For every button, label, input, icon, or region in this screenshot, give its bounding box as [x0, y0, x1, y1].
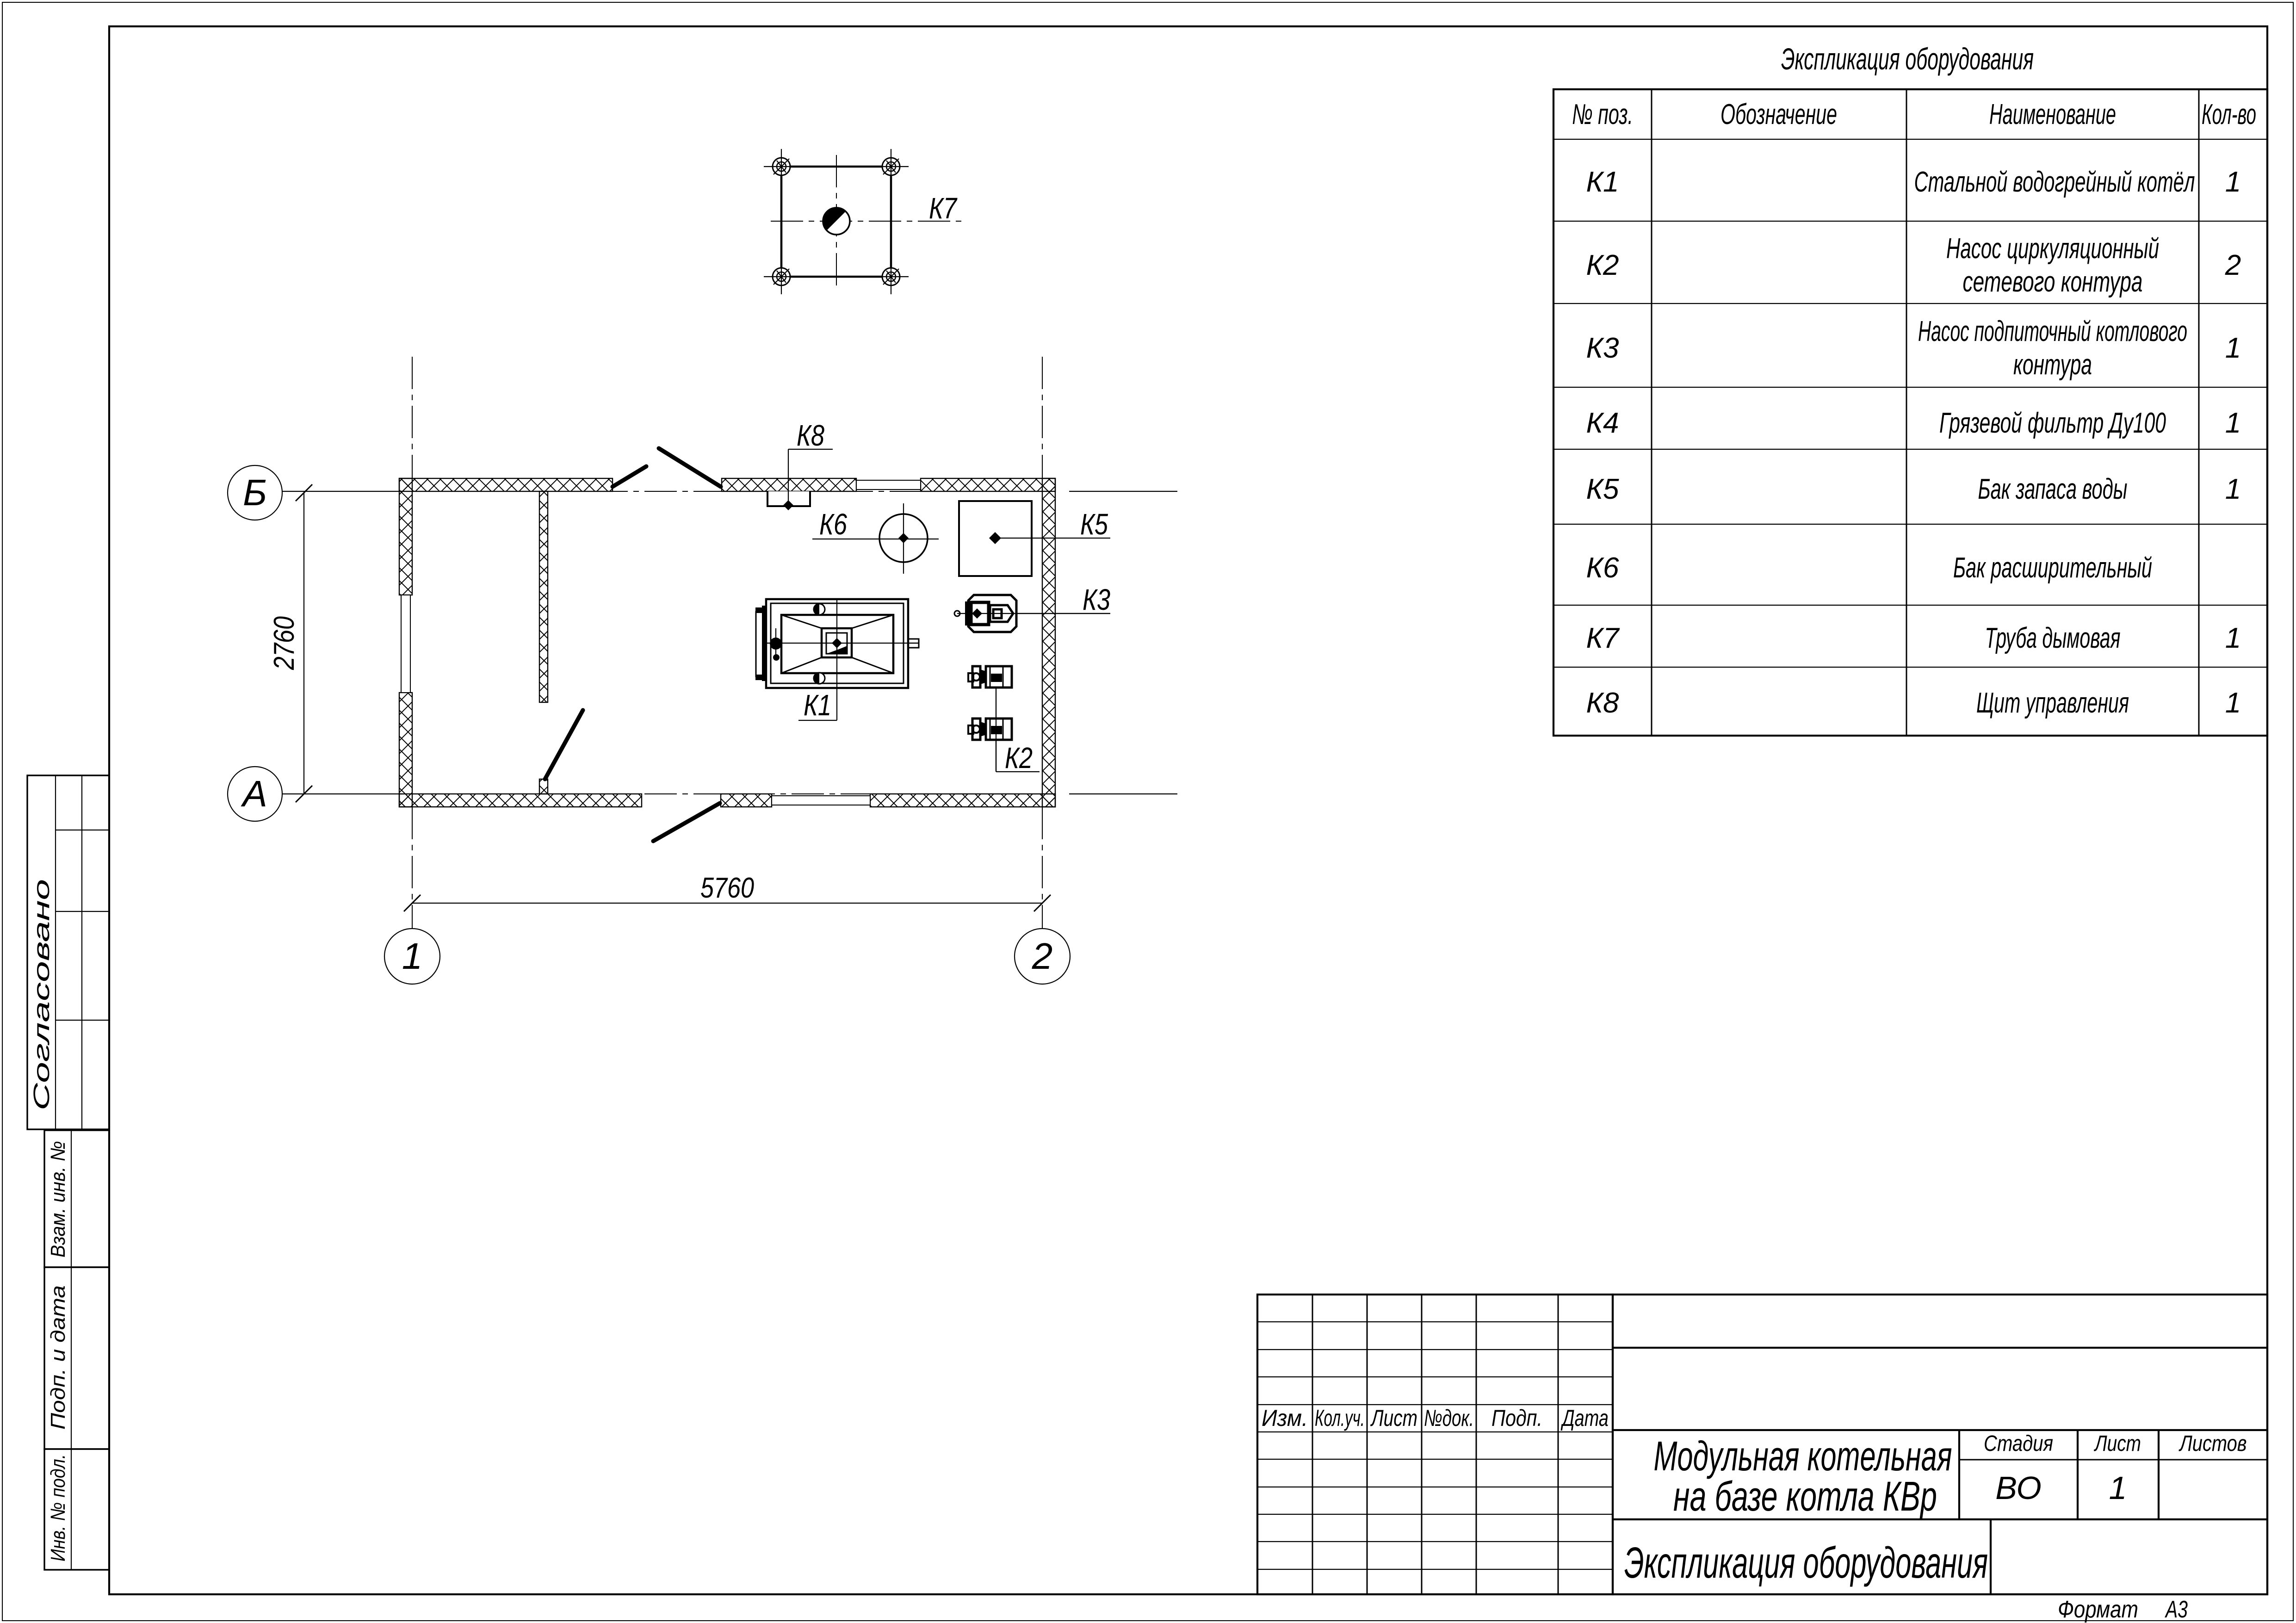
svg-text:Лист: Лист [1370, 1405, 1417, 1431]
svg-text:Стадия: Стадия [1984, 1431, 2053, 1456]
svg-text:Кол.уч.: Кол.уч. [1315, 1405, 1365, 1431]
svg-text:К8: К8 [797, 419, 824, 452]
svg-text:Грязевой фильтр Ду100: Грязевой фильтр Ду100 [1939, 407, 2166, 439]
svg-text:А3: А3 [2165, 1596, 2188, 1623]
svg-text:К8: К8 [1586, 687, 1619, 719]
svg-text:5760: 5760 [700, 872, 754, 904]
svg-text:Щит управления: Щит управления [1976, 687, 2129, 719]
svg-text:контура: контура [2013, 349, 2092, 381]
svg-text:К1: К1 [1586, 166, 1619, 198]
svg-text:Бак расширительный: Бак расширительный [1953, 552, 2152, 584]
svg-text:1: 1 [2225, 407, 2241, 439]
svg-text:К3: К3 [1083, 583, 1110, 616]
svg-text:Б: Б [243, 472, 267, 513]
svg-text:К1: К1 [804, 688, 831, 722]
svg-text:1: 1 [2109, 1470, 2127, 1506]
svg-text:№ поз.: № поз. [1572, 99, 1633, 130]
svg-text:Стальной водогрейный котёл: Стальной водогрейный котёл [1914, 166, 2195, 198]
svg-text:сетевого контура: сетевого контура [1963, 266, 2143, 298]
svg-text:А: А [241, 773, 267, 814]
svg-text:Согласовано: Согласовано [30, 879, 54, 1110]
svg-text:К5: К5 [1080, 508, 1108, 541]
svg-text:Листов: Листов [2178, 1431, 2246, 1456]
svg-text:2: 2 [1032, 935, 1053, 977]
svg-text:Насос циркуляционный: Насос циркуляционный [1946, 233, 2159, 265]
svg-text:1: 1 [2225, 473, 2241, 505]
svg-text:№док.: №док. [1424, 1405, 1474, 1431]
svg-text:Наименование: Наименование [1989, 99, 2116, 130]
svg-text:К7: К7 [1586, 622, 1620, 654]
svg-text:2760: 2760 [268, 616, 300, 670]
svg-text:К6: К6 [1586, 552, 1619, 584]
svg-text:Труба дымовая: Труба дымовая [1985, 622, 2121, 654]
svg-text:на базе котла КВр: на базе котла КВр [1673, 1474, 1937, 1520]
svg-text:1: 1 [402, 935, 423, 977]
svg-text:Подп.: Подп. [1491, 1405, 1542, 1431]
svg-text:К2: К2 [1586, 249, 1619, 281]
svg-text:Формат: Формат [2058, 1596, 2138, 1623]
svg-text:Бак запаса воды: Бак запаса воды [1978, 473, 2128, 505]
svg-text:Изм.: Изм. [1262, 1405, 1308, 1431]
svg-text:ВО: ВО [1995, 1470, 2042, 1506]
svg-text:Дата: Дата [1560, 1405, 1609, 1431]
svg-text:1: 1 [2225, 166, 2241, 198]
svg-text:Модульная котельная: Модульная котельная [1654, 1433, 1952, 1480]
svg-text:К6: К6 [819, 508, 847, 541]
svg-text:2: 2 [2225, 249, 2241, 281]
svg-text:Кол-во: Кол-во [2202, 99, 2256, 130]
svg-text:1: 1 [2225, 622, 2241, 654]
svg-text:К5: К5 [1586, 473, 1619, 505]
svg-text:Насос подпиточный котлового: Насос подпиточный котлового [1918, 316, 2187, 347]
svg-text:1: 1 [2225, 332, 2241, 364]
svg-text:К2: К2 [1005, 741, 1033, 774]
svg-text:1: 1 [2225, 687, 2241, 719]
svg-text:К3: К3 [1586, 332, 1619, 364]
svg-text:Инв. № подл.: Инв. № подл. [47, 1454, 69, 1561]
svg-text:Экспликация оборудования: Экспликация оборудования [1781, 42, 2034, 76]
svg-text:Обозначение: Обозначение [1720, 99, 1837, 130]
svg-text:К4: К4 [1586, 407, 1619, 439]
svg-text:Экспликация оборудования: Экспликация оборудования [1624, 1538, 1988, 1587]
svg-text:Подп. и дата: Подп. и дата [47, 1285, 69, 1430]
svg-text:Взам. инв. №: Взам. инв. № [47, 1141, 69, 1258]
svg-text:Лист: Лист [2094, 1431, 2141, 1456]
svg-text:К7: К7 [929, 192, 958, 225]
